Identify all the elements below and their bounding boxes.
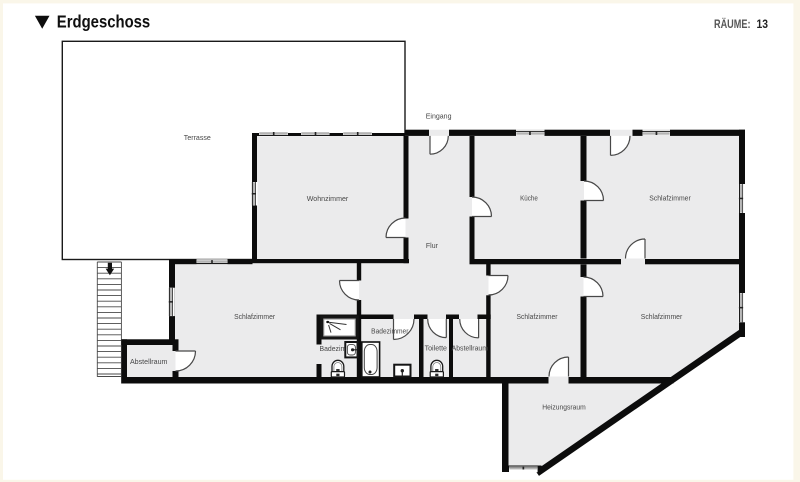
svg-text:Schlafzimmer: Schlafzimmer bbox=[649, 194, 691, 203]
svg-text:Wohnzimmer: Wohnzimmer bbox=[307, 194, 349, 203]
svg-text:Abstellraum: Abstellraum bbox=[452, 344, 488, 353]
svg-text:Flur: Flur bbox=[426, 241, 438, 250]
svg-text:Toilette: Toilette bbox=[425, 344, 447, 353]
svg-text:Abstellraum: Abstellraum bbox=[130, 357, 168, 366]
svg-text:Erdgeschoss: Erdgeschoss bbox=[57, 12, 151, 32]
svg-text:13: 13 bbox=[757, 17, 769, 31]
svg-text:Heizungsraum: Heizungsraum bbox=[542, 403, 585, 412]
svg-text:RÄUME:: RÄUME: bbox=[714, 17, 751, 31]
svg-text:Schlafzimmer: Schlafzimmer bbox=[517, 312, 558, 321]
svg-text:Badezimmer: Badezimmer bbox=[371, 327, 409, 336]
svg-text:Terrasse: Terrasse bbox=[184, 133, 211, 142]
svg-text:Eingang: Eingang bbox=[426, 112, 452, 121]
svg-text:Schlafzimmer: Schlafzimmer bbox=[641, 312, 683, 321]
svg-text:Schlafzimmer: Schlafzimmer bbox=[234, 312, 275, 321]
svg-text:Küche: Küche bbox=[520, 193, 538, 202]
